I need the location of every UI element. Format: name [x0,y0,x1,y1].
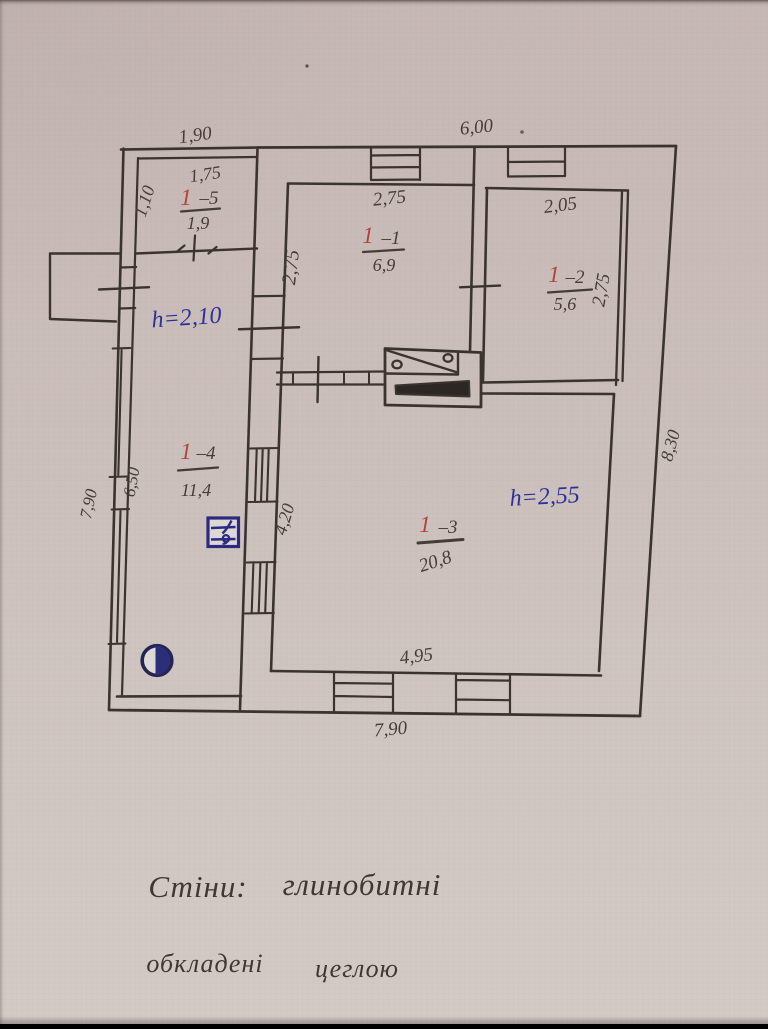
svg-text:–4: –4 [196,443,217,464]
svg-text:1: 1 [362,223,374,248]
svg-text:–1: –1 [381,228,401,249]
svg-text:1: 1 [180,439,192,464]
svg-text:глинобитні: глинобитні [283,867,442,902]
svg-text:2,75: 2,75 [372,186,407,210]
svg-text:6,00: 6,00 [459,115,495,139]
svg-text:h=2,55: h=2,55 [509,482,580,512]
svg-text:обкладені: обкладені [146,949,263,978]
svg-text:1,9: 1,9 [187,213,210,233]
svg-text:1: 1 [548,262,560,287]
svg-text:7,90: 7,90 [373,718,408,742]
svg-text:–3: –3 [438,517,458,538]
svg-text:11,4: 11,4 [181,480,211,500]
svg-text:1: 1 [180,185,192,210]
svg-text:цеглою: цеглою [315,954,399,983]
svg-text:2,75: 2,75 [278,249,304,286]
svg-text:5,6: 5,6 [554,294,577,314]
svg-text:6,9: 6,9 [373,255,396,275]
svg-text:Стіни:: Стіни: [148,869,247,904]
svg-text:–2: –2 [565,267,586,288]
svg-text:4,95: 4,95 [399,644,435,669]
svg-text:2,05: 2,05 [543,193,579,218]
svg-text:–5: –5 [199,188,219,209]
svg-text:h=2,10: h=2,10 [151,303,223,334]
svg-text:1: 1 [419,512,431,537]
